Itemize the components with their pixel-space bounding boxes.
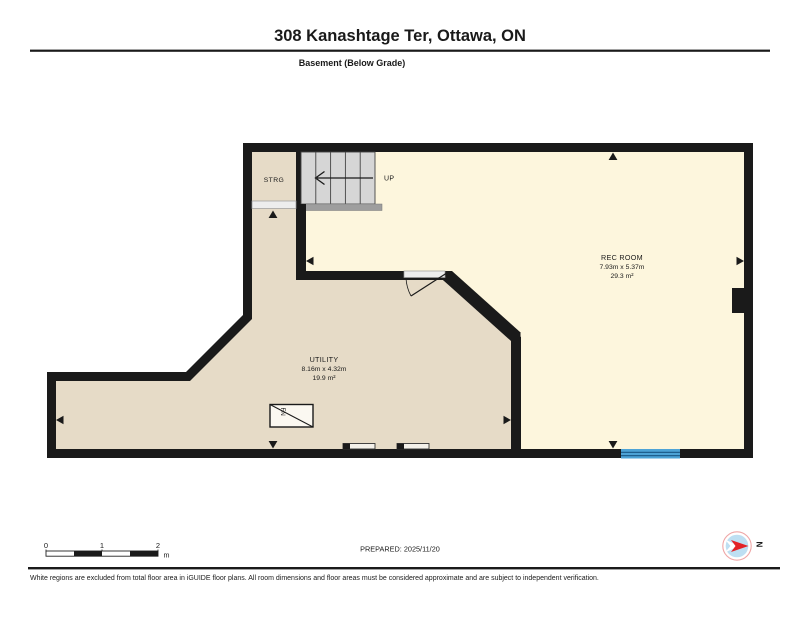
support-post (397, 444, 404, 450)
scale-tick-2: 2 (156, 541, 160, 550)
support-post (343, 444, 350, 450)
scale-bar: 0 1 2 m (44, 541, 170, 560)
header: 308 Kanashtage Ter, Ottawa, ON Basement … (30, 27, 770, 68)
utility-room-area: 19.9 m² (312, 375, 336, 382)
scale-tick-1: 1 (100, 541, 104, 550)
footer-divider (28, 567, 780, 569)
stair-landing-edge (301, 204, 382, 211)
wall-utility-right (511, 332, 521, 449)
utility-room-dimensions: 8.16m x 4.32m (302, 366, 347, 373)
rec-room-area: 29.3 m² (610, 273, 634, 280)
floor-plan-canvas: 308 Kanashtage Ter, Ottawa, ON Basement … (0, 0, 800, 618)
compass-north-label: N (755, 542, 764, 548)
rec-room-dimensions: 7.93m x 5.37m (600, 264, 645, 271)
page-title: 308 Kanashtage Ter, Ottawa, ON (274, 27, 526, 45)
storage-door-opening (252, 201, 296, 209)
wall-protrusion-right (732, 288, 744, 313)
floor-plan-page: 308 Kanashtage Ter, Ottawa, ON Basement … (0, 0, 800, 618)
scale-bar-segment (74, 551, 102, 556)
furnace-label: FN (279, 408, 286, 416)
title-divider (30, 50, 770, 52)
floor-label: Basement (Below Grade) (299, 58, 406, 68)
footer-disclaimer: White regions are excluded from total fl… (30, 575, 599, 582)
furnace-symbol: FN (270, 405, 313, 428)
window-glass (621, 449, 680, 459)
scale-tick-0: 0 (44, 541, 48, 550)
basement-window (621, 449, 680, 459)
utility-room-label: UTILITY (310, 355, 339, 364)
wall-utility-top (296, 271, 404, 280)
prepared-date: PREPARED: 2025/11/20 (360, 545, 440, 554)
scale-unit-label: m (164, 551, 170, 560)
stairs-up-label: UP (384, 176, 394, 183)
scale-bar-segment (130, 551, 158, 556)
wall-below-stairs (296, 204, 306, 280)
storage-room-label: STRG (264, 177, 284, 184)
floor-plan: UP FN (47, 143, 753, 459)
compass-icon: N (723, 532, 764, 560)
footer: White regions are excluded from total fl… (28, 567, 780, 582)
rec-room-label: REC ROOM (601, 253, 643, 262)
utility-door-opening (404, 271, 445, 278)
